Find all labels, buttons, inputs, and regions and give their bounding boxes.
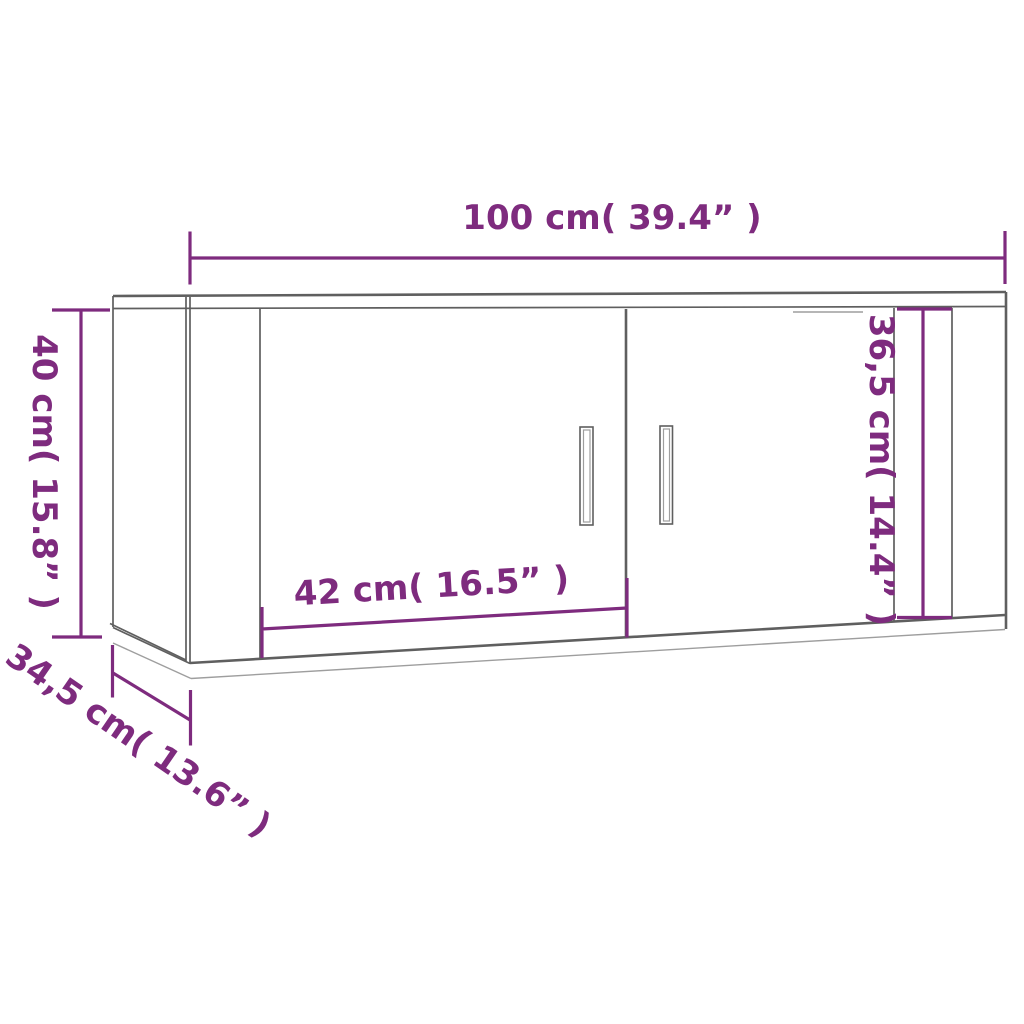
left-door-handle [580,427,593,525]
inner-height-dimension-line [897,309,952,618]
left-door-handle-bar [580,427,593,525]
cabinet-top-back-edge [113,292,1006,296]
depth-dimension-label: 34,5 cm( 13.6” ) [0,636,278,846]
right-door-handle-bar [660,426,673,524]
cabinet-top-front-edge [113,307,1006,309]
door-width-dimension-label: 42 cm( 16.5” ) [293,559,571,615]
cabinet-bottom-lower-edge [191,630,1005,679]
width-dimension-label: 100 cm( 39.4” ) [462,198,761,238]
height-dimension-label: 40 cm( 15.8” ) [24,334,64,610]
cabinet-left-bottom-edge-outer [110,624,186,661]
inner-height-dimension-label: 36,5 cm( 14.4” ) [861,314,901,626]
right-door-handle [660,426,673,524]
product-dimension-diagram: 100 cm( 39.4” ) 40 cm( 15.8” ) 36,5 cm( … [0,0,1024,1024]
dimension-diagram-canvas: 100 cm( 39.4” ) 40 cm( 15.8” ) 36,5 cm( … [0,0,1024,1024]
width-dimension-line [190,231,1005,285]
cabinet-bottom-left-lower-edge [113,643,191,679]
cabinet-left-bottom-edge [113,628,190,664]
